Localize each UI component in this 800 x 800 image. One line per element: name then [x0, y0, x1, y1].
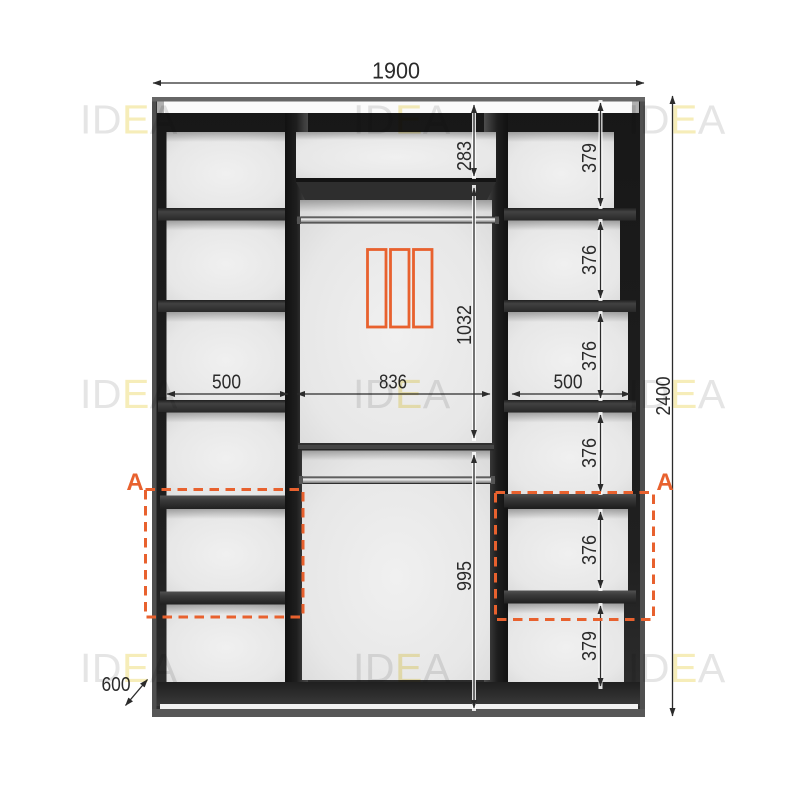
svg-text:376: 376 [579, 341, 601, 371]
svg-text:1900: 1900 [372, 58, 420, 84]
svg-text:IDEA: IDEA [80, 371, 178, 417]
svg-text:IDEA: IDEA [80, 97, 178, 143]
svg-text:379: 379 [579, 143, 601, 173]
svg-text:500: 500 [212, 372, 241, 394]
svg-text:500: 500 [554, 372, 583, 394]
svg-text:376: 376 [579, 438, 601, 468]
svg-text:IDEA: IDEA [353, 371, 451, 417]
svg-text:376: 376 [579, 535, 601, 565]
svg-text:IDEA: IDEA [353, 645, 451, 691]
svg-text:995: 995 [454, 561, 476, 591]
svg-text:376: 376 [579, 245, 601, 275]
svg-text:IDEA: IDEA [80, 645, 178, 691]
svg-text:IDEA: IDEA [628, 645, 726, 691]
svg-text:A: A [126, 469, 143, 496]
svg-text:283: 283 [454, 141, 476, 171]
svg-text:379: 379 [579, 631, 601, 661]
svg-text:A: A [656, 469, 673, 496]
svg-text:IDEA: IDEA [353, 97, 451, 143]
svg-text:1032: 1032 [454, 305, 476, 345]
svg-text:IDEA: IDEA [628, 371, 726, 417]
svg-text:IDEA: IDEA [628, 97, 726, 143]
